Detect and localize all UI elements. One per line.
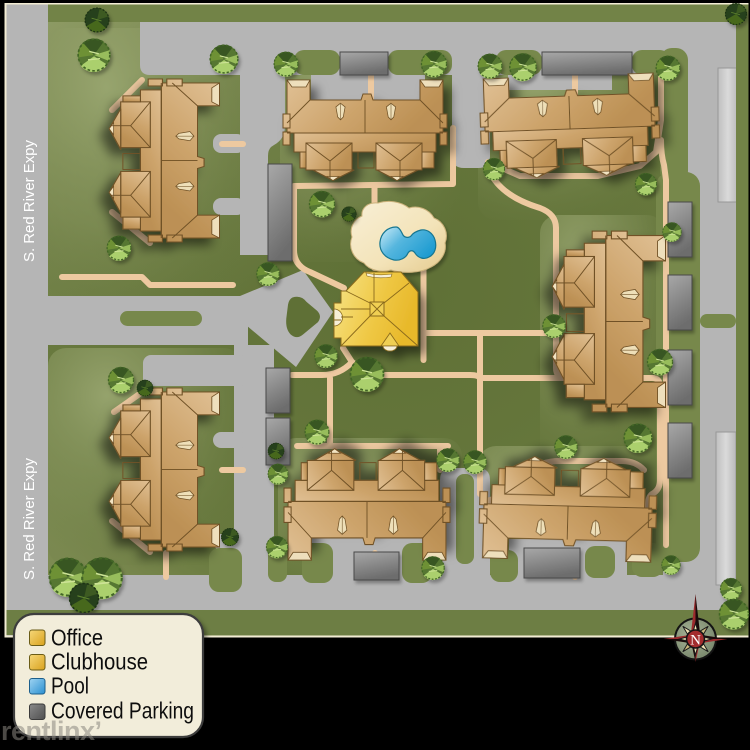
svg-text:Office: Office (51, 625, 103, 651)
svg-text:N: N (690, 633, 701, 649)
svg-text:rentlinx’: rentlinx’ (1, 716, 102, 746)
svg-text:Clubhouse: Clubhouse (51, 649, 148, 675)
svg-text:Pool: Pool (51, 673, 89, 699)
svg-text:S. Red River Expy: S. Red River Expy (21, 458, 38, 581)
svg-text:S. Red River Expy: S. Red River Expy (21, 140, 38, 263)
